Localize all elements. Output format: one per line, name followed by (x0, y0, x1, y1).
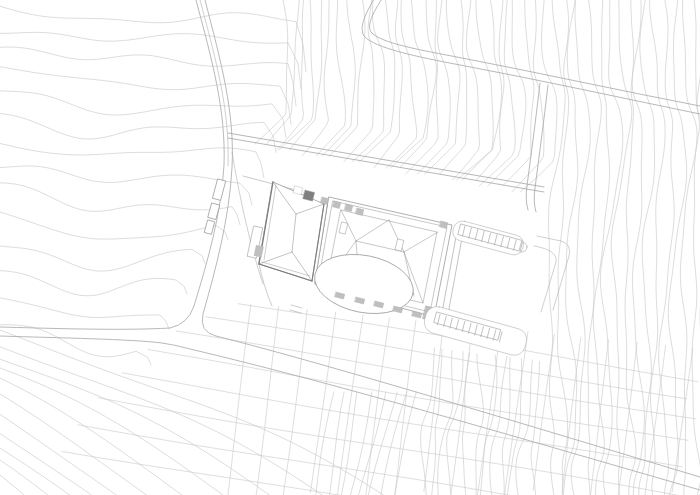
contour-line (329, 0, 365, 156)
contour-line (0, 475, 40, 495)
contour-line (490, 356, 507, 495)
parking-stall (213, 179, 226, 200)
contour-line (0, 359, 280, 495)
parking-stall (208, 203, 220, 220)
contour-line (350, 392, 372, 495)
terrace-survey-grid (62, 304, 698, 495)
contour-line (457, 0, 494, 180)
site-plan-drawing (0, 0, 700, 495)
contour-line (0, 460, 60, 495)
contour-line (600, 0, 622, 495)
contour-line (479, 0, 515, 186)
east-path-inner (534, 246, 556, 312)
contour-line (0, 212, 228, 240)
contour-line (0, 67, 291, 124)
contour-line (571, 0, 590, 495)
grid-line (310, 312, 335, 492)
short-garden-wall (243, 176, 296, 190)
contour-line (453, 0, 480, 180)
contour-line (302, 0, 329, 156)
grid-line (644, 345, 666, 495)
contour-line (0, 414, 130, 495)
contour-line (390, 0, 428, 168)
contour-line (0, 183, 240, 225)
contour-line (0, 6, 306, 71)
contour-line (0, 378, 200, 495)
contour-line (516, 360, 533, 495)
grid-line (176, 331, 696, 419)
upper-stair (451, 219, 570, 312)
contour-line (0, 114, 276, 153)
contour-line (418, 0, 451, 174)
site-plan-page (0, 0, 700, 495)
north-retaining-wall-upper (228, 133, 544, 187)
contour-line (0, 166, 252, 205)
contour-line (381, 392, 407, 495)
west-wing (248, 182, 324, 313)
contour-line (503, 0, 535, 186)
grid-line (148, 350, 688, 441)
grid-line (282, 310, 307, 495)
grid-line (424, 323, 444, 491)
contour-line (512, 0, 544, 192)
contour-line (0, 347, 340, 495)
contour-line (440, 0, 467, 174)
grid-line (618, 343, 638, 495)
contour-line (463, 353, 470, 495)
contour-line (680, 0, 697, 495)
contour-layer-west-slope (0, 6, 306, 365)
grid-line (451, 326, 472, 494)
contour-line (0, 91, 286, 138)
contour-line (0, 271, 187, 296)
contour-line (692, 0, 700, 495)
contour-line (0, 32, 301, 88)
contour-line (668, 0, 686, 495)
contour-line (462, 0, 501, 180)
grid-line (228, 304, 251, 495)
grid-line (98, 398, 698, 495)
contour-line (0, 47, 296, 106)
contour-line (476, 0, 504, 180)
contour-line (659, 0, 675, 495)
contour-line (650, 0, 666, 495)
contour-line (322, 0, 355, 156)
road-south-lower-edge (0, 336, 700, 490)
grid-line (477, 329, 500, 495)
contour-line (593, 0, 609, 495)
contour-line (563, 0, 578, 495)
lower-stair (422, 304, 529, 358)
contour-line (611, 0, 632, 495)
east-path-outer (537, 236, 570, 310)
contour-line (316, 392, 334, 495)
contour-line (0, 246, 205, 271)
contour-line (406, 0, 438, 174)
parking-stall (205, 220, 215, 234)
contour-line (0, 434, 110, 495)
contour-line (0, 448, 80, 495)
contour-line (625, 0, 636, 495)
driveway-to-building (232, 152, 263, 284)
contour-line (0, 394, 160, 495)
contour-line (330, 392, 345, 495)
contour-line (0, 298, 169, 329)
contour-line (438, 350, 453, 495)
